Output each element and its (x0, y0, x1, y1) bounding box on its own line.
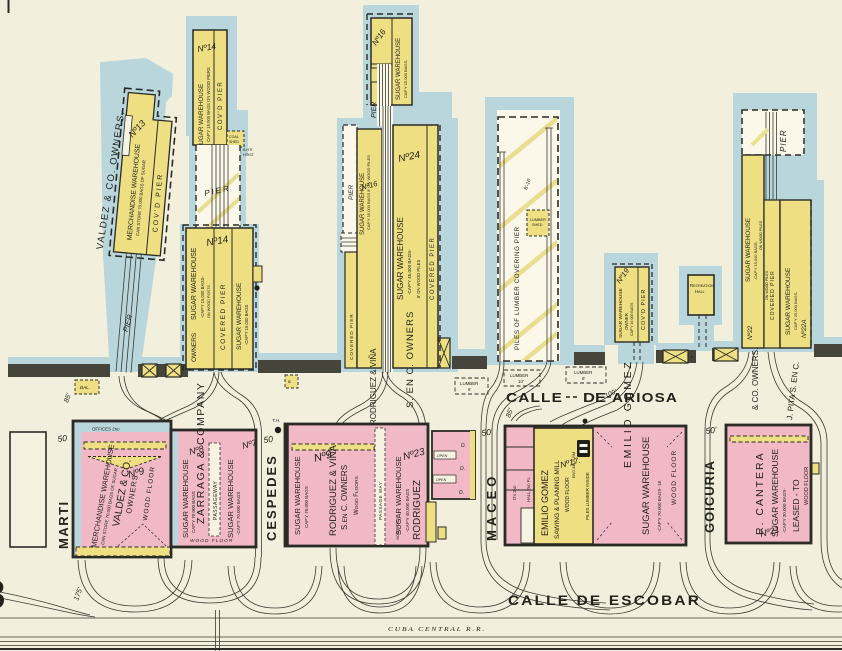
svg-text:PASSAGEWAY: PASSAGEWAY (213, 480, 219, 520)
svg-text:HALL: HALL (695, 289, 705, 294)
svg-text:COV'D PIER: COV'D PIER (641, 289, 647, 330)
svg-text:SAWING & PLANING MILL: SAWING & PLANING MILL (554, 460, 561, 539)
svg-text:50': 50' (705, 424, 718, 435)
svg-text:SUGAR WAREHOUSE: SUGAR WAREHOUSE (226, 459, 235, 538)
svg-text:LUMBER: LUMBER (460, 381, 478, 386)
svg-text:MARTI: MARTI (56, 500, 71, 549)
svg-text:R. CANTERA: R. CANTERA (754, 451, 766, 535)
svg-text:D'S 2ND: D'S 2ND (512, 485, 517, 500)
svg-text:HOIST: HOIST (243, 153, 255, 157)
svg-text:WOOD FLOOR: WOOD FLOOR (190, 538, 233, 544)
svg-text:LUMBER: LUMBER (530, 218, 546, 222)
svg-text:T.H.: T.H. (272, 418, 280, 423)
svg-text:CAP'Y 15.000 BAGS 8' ON WOOD P: CAP'Y 15.000 BAGS 8' ON WOOD PILES (366, 155, 371, 230)
svg-text:Nº22: Nº22 (747, 325, 754, 340)
svg-text:PASSAGE WAY: PASSAGE WAY (378, 482, 383, 520)
svg-text:D.: D. (460, 466, 465, 472)
svg-text:CAP'Y 10.000 BAGS: CAP'Y 10.000 BAGS (630, 302, 634, 336)
svg-text:OPEN: OPEN (436, 478, 447, 482)
svg-text:-CAP'Y 45.000 BAGS-: -CAP'Y 45.000 BAGS- (407, 249, 412, 295)
svg-text:-CAP'Y 15.000 BAGS: -CAP'Y 15.000 BAGS (244, 305, 249, 345)
svg-text:OPEN: OPEN (437, 454, 448, 458)
svg-text:RODRIGUEZ & VIÑA: RODRIGUEZ & VIÑA (369, 348, 378, 425)
svg-text:CUBA CENTRAL R.R.: CUBA CENTRAL R.R. (388, 626, 486, 633)
svg-text:PILES OF LUMBER COVERING P: PILES OF LUMBER COVERING PIER (514, 226, 521, 350)
svg-text:SUGAR WAREHOUSE: SUGAR WAREHOUSE (198, 84, 205, 149)
svg-text:OWNERS: OWNERS (191, 332, 198, 362)
svg-text:PILES LUMBER INSIDE: PILES LUMBER INSIDE (585, 472, 590, 520)
svg-text:PIER: PIER (371, 102, 378, 118)
svg-text:D.: D. (459, 490, 464, 496)
svg-text:WOOD FLOORS: WOOD FLOORS (354, 476, 360, 515)
svg-text:6.: 6. (288, 379, 292, 384)
svg-text:ENG.&BLR.RM: ENG.&BLR.RM (572, 452, 576, 478)
svg-text:-CAP'Y 30.000 BAGS-: -CAP'Y 30.000 BAGS- (782, 488, 787, 533)
svg-text:WOOD FLOOR: WOOD FLOOR (671, 450, 678, 505)
svg-text:SUGAR WAREHOUSE: SUGAR WAREHOUSE (396, 38, 402, 100)
svg-text:GOICURIA: GOICURIA (702, 460, 717, 533)
svg-text:-CAP'Y 40.000 BAGS: -CAP'Y 40.000 BAGS (405, 489, 410, 532)
svg-text:EMILIO GOMEZ: EMILIO GOMEZ (540, 469, 550, 536)
svg-text:SHED: SHED (532, 223, 543, 227)
svg-text:WOOD POSTS: WOOD POSTS (396, 516, 400, 540)
svg-text:SUGAR WAREHOUSE: SUGAR WAREHOUSE (745, 218, 752, 282)
svg-text:B.H’S’: B.H’S’ (243, 148, 253, 152)
svg-text:SUGAR WAREHOUSE: SUGAR WAREHOUSE (785, 267, 792, 335)
svg-text:S.EN C. OWNERS: S.EN C. OWNERS (340, 465, 349, 530)
svg-text:CAP'Y 25.000 BAGS-: CAP'Y 25.000 BAGS- (793, 291, 798, 330)
svg-text:PIER: PIER (779, 129, 788, 152)
svg-text:MACEO: MACEO (484, 473, 499, 541)
svg-text:SUGAR WAREHOUSE: SUGAR WAREHOUSE (641, 437, 652, 535)
svg-text:ARIOSA: ARIOSA (612, 390, 678, 405)
svg-text:LUMBER: LUMBER (574, 370, 592, 375)
svg-text:RECREATION: RECREATION (690, 283, 714, 288)
svg-text:COVERED PIER: COVERED PIER (349, 313, 354, 360)
svg-text:50: 50 (57, 433, 68, 444)
svg-text:-CAP'Y 70.000 BAGS: -CAP'Y 70.000 BAGS (236, 492, 241, 535)
svg-text:SUGAR WAREHOUSE: SUGAR WAREHOUSE (396, 217, 405, 300)
svg-text:OWNER: OWNER (624, 313, 629, 330)
svg-text:8' ON WOOD PILES: 8' ON WOOD PILES (416, 260, 421, 298)
svg-text:SUGAR WAREHOUSE: SUGAR WAREHOUSE (770, 449, 780, 537)
svg-text:50': 50' (481, 426, 494, 437)
svg-text:CAP'Y 15.000 BAGS-: CAP'Y 15.000 BAGS- (403, 59, 408, 98)
svg-text:BAL.: BAL. (80, 385, 90, 390)
svg-text:D.: D. (461, 443, 466, 449)
svg-text:ZARRAGA & COMPANY: ZARRAGA & COMPANY (195, 381, 207, 524)
svg-text:COVERED PIER: COVERED PIER (220, 283, 227, 350)
svg-text:COV'D PIER: COV'D PIER (218, 81, 224, 130)
svg-text:COVERED PIER: COVERED PIER (770, 270, 776, 320)
svg-text:-CAP'Y 15,000 BAGS-: -CAP'Y 15,000 BAGS- (200, 276, 205, 318)
svg-text:RODRIGUEZ & VIÑA: RODRIGUEZ & VIÑA (328, 445, 339, 536)
svg-text:LUMBER: LUMBER (510, 373, 528, 378)
svg-text:SUGAR WAREHOUSE: SUGAR WAREHOUSE (181, 459, 190, 538)
svg-text:50: 50 (263, 434, 274, 445)
svg-text:CAP'Y 70.000 BAGS: CAP'Y 70.000 BAGS (304, 486, 309, 528)
svg-text:Nº22A: Nº22A (801, 319, 808, 338)
svg-text:10': 10' (518, 379, 524, 384)
svg-text:RODRIGUEZ: RODRIGUEZ (412, 480, 423, 540)
svg-text:COAL: COAL (229, 135, 239, 139)
svg-text:CESPEDES: CESPEDES (264, 454, 279, 541)
svg-text:SUGAR WAREHOUSE: SUGAR WAREHOUSE (191, 247, 198, 320)
svg-text:-CAP'Y 70.000 BAGS- 18: -CAP'Y 70.000 BAGS- 18 (657, 480, 662, 532)
svg-text:CALLE: CALLE (506, 390, 563, 405)
svg-text:CAP'Y 15.000 BAGS ON WOOD PIER: CAP'Y 15.000 BAGS ON WOOD PIERS (206, 67, 211, 142)
svg-text:COVERED PIER: COVERED PIER (430, 237, 436, 300)
svg-text:HALL 2ND FL: HALL 2ND FL (526, 477, 531, 502)
svg-text:& CO. OWNERS.: & CO. OWNERS. (751, 348, 760, 410)
svg-text:WOOD FLOOR: WOOD FLOOR (565, 477, 571, 512)
svg-text:EMILIO GOMEZ: EMILIO GOMEZ (622, 360, 634, 468)
svg-text:-CAP'Y 15.000 BAGS-: -CAP'Y 15.000 BAGS- (753, 241, 758, 280)
svg-text:6': 6' (468, 387, 471, 392)
svg-text:ON WOOD PILES: ON WOOD PILES (765, 270, 769, 300)
svg-text:SUGAR WAREHOUSE: SUGAR WAREHOUSE (236, 282, 243, 350)
svg-text:SUGAR WAREHOUSE: SUGAR WAREHOUSE (293, 456, 302, 535)
svg-text:8': 8' (582, 376, 585, 381)
svg-text:DE: DE (583, 390, 606, 405)
svg-text:CALLE DE ESCOBAR: CALLE DE ESCOBAR (508, 592, 701, 608)
svg-text:8: 8 (0, 573, 5, 617)
svg-text:LEASED - TO: LEASED - TO (791, 479, 801, 532)
svg-text:PIER: PIER (348, 185, 355, 200)
svg-text:SHED: SHED (229, 140, 239, 144)
svg-text:OFFICES 2ND: OFFICES 2ND (92, 427, 120, 432)
svg-text:WOOD FLOOR: WOOD FLOOR (804, 467, 810, 505)
svg-text:ON WOOD PILES: ON WOOD PILES (759, 220, 763, 250)
svg-text:ON WOOD POSTS: ON WOOD POSTS (207, 285, 211, 318)
